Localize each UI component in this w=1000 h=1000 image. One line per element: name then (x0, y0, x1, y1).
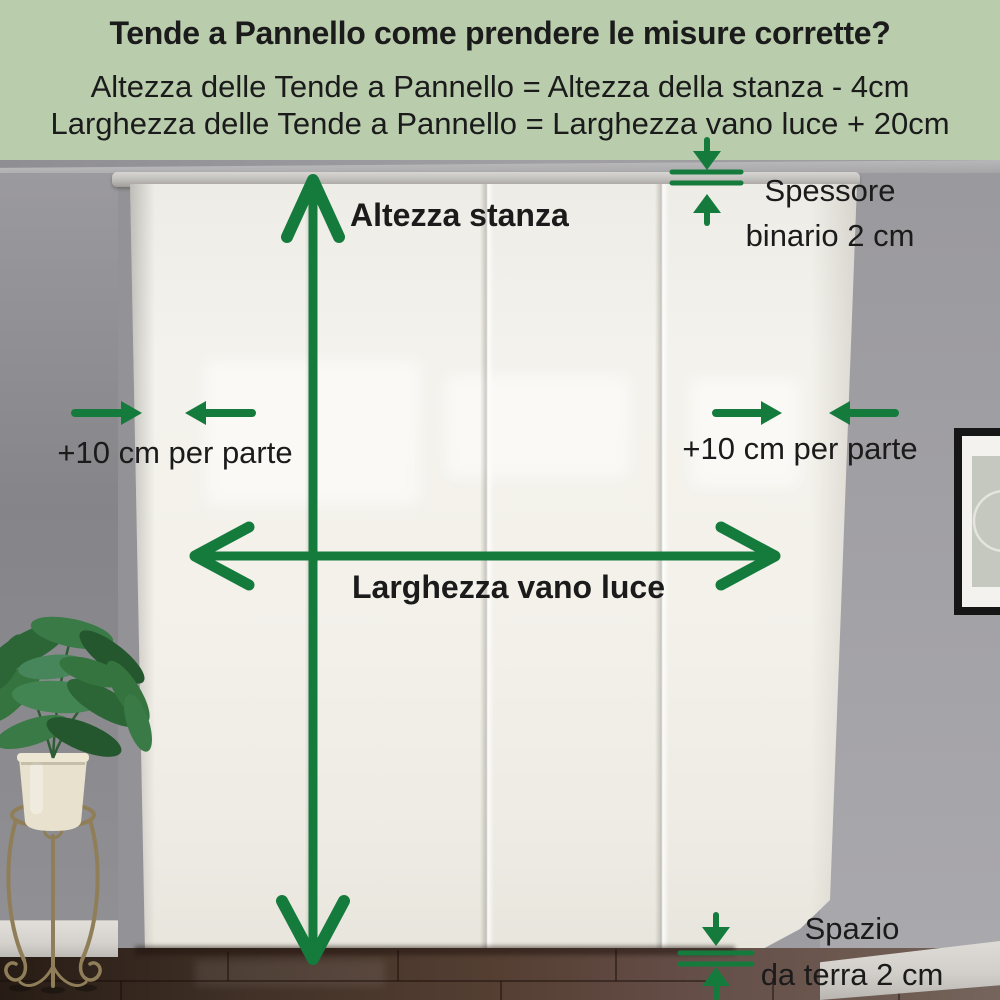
floor-gap-line1: Spazio (727, 906, 977, 952)
opening-width-label: Larghezza vano luce (352, 569, 665, 606)
rail-thickness-line1: Spessore (690, 168, 970, 213)
floor-gap-label: Spazio da terra 2 cm (727, 906, 977, 998)
rail-thickness-line2: binario 2 cm (690, 213, 970, 258)
measurement-arrows (0, 0, 1000, 1000)
side-allowance-arrows-right (716, 401, 895, 425)
side-allowance-label-right: +10 cm per parte (655, 431, 945, 467)
side-allowance-label-left: +10 cm per parte (30, 435, 320, 471)
rail-thickness-label: Spessore binario 2 cm (690, 168, 970, 258)
side-allowance-arrows-left (75, 401, 252, 425)
room-height-label: Altezza stanza (350, 197, 569, 234)
height-arrow (282, 180, 344, 959)
floor-gap-line2: da terra 2 cm (727, 952, 977, 998)
